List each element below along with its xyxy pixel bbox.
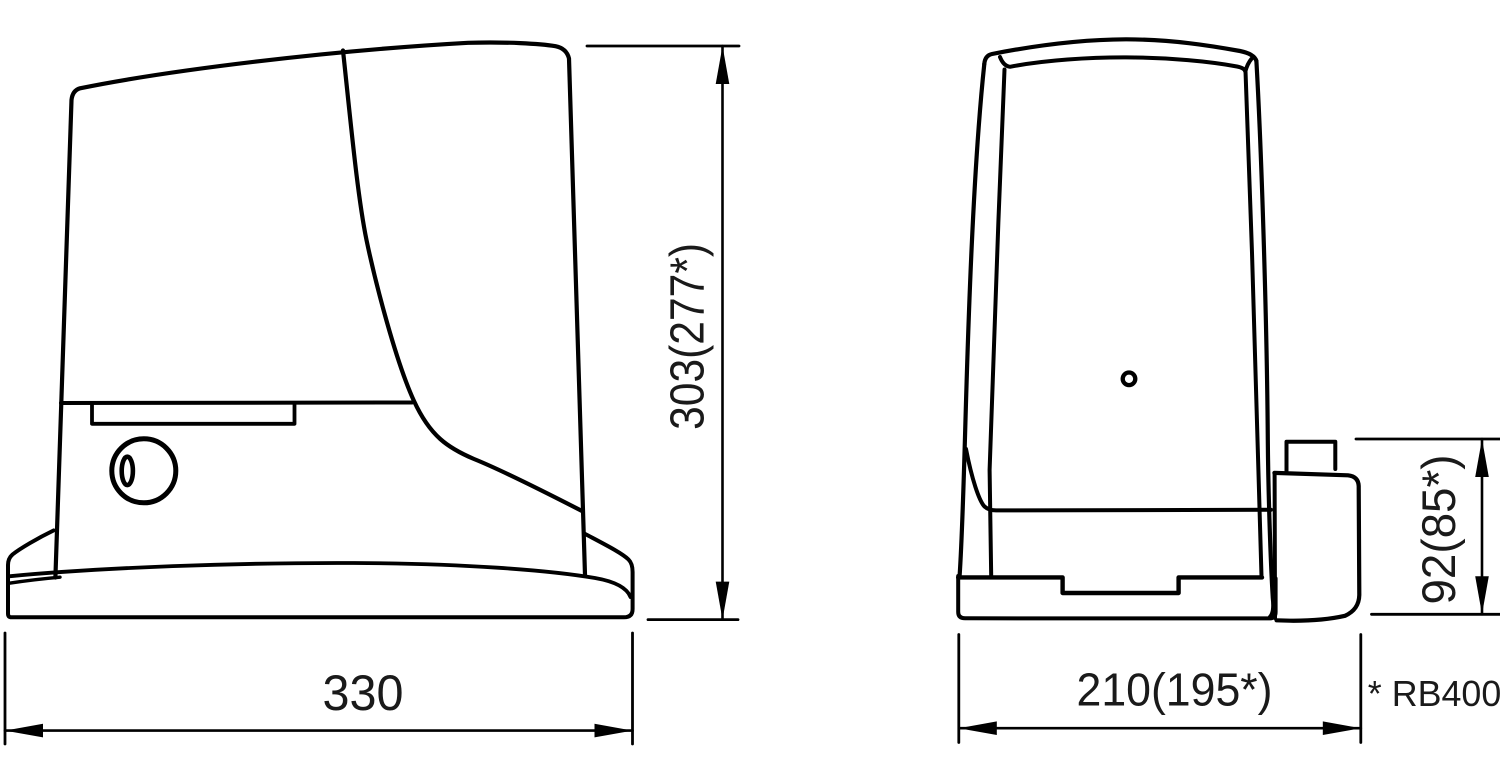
svg-text:* RB400: * RB400: [1368, 673, 1500, 714]
svg-text:92(85*): 92(85*): [1413, 455, 1466, 605]
svg-text:210(195*): 210(195*): [1077, 664, 1273, 716]
svg-text:330: 330: [323, 664, 404, 721]
svg-text:303(277*): 303(277*): [662, 243, 715, 430]
